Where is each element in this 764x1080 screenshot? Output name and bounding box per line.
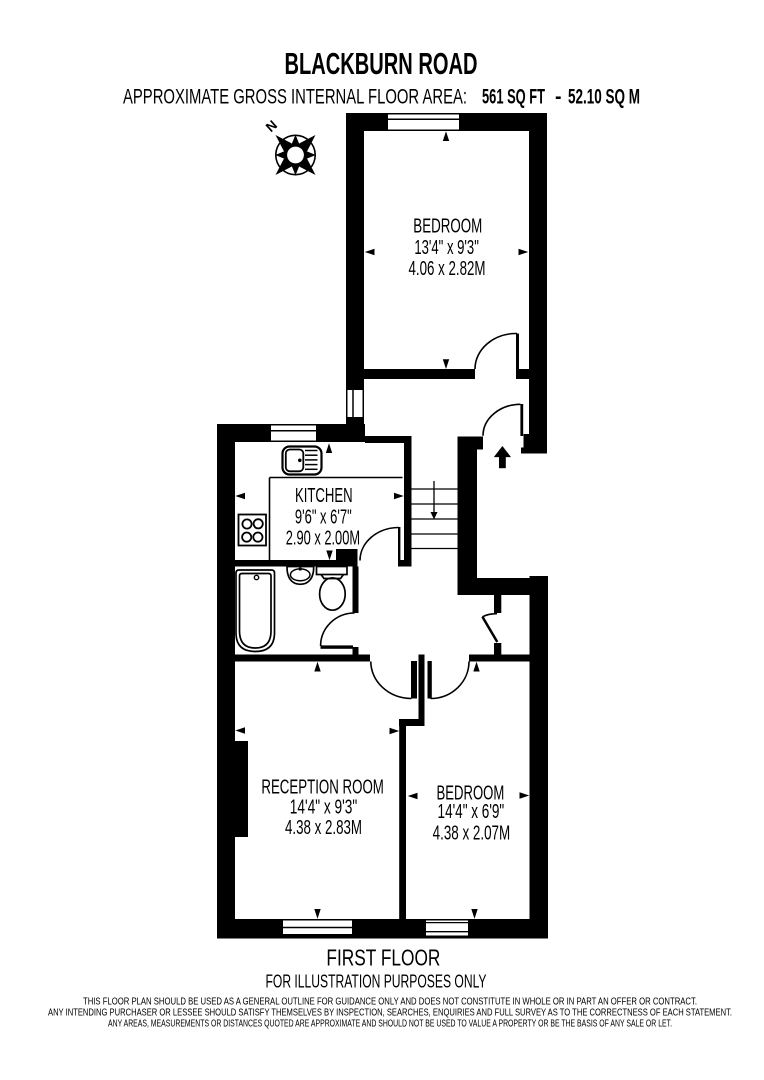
- svg-text:4.38 x 2.83M: 4.38 x 2.83M: [285, 817, 362, 839]
- svg-text:13'4" x 9'3": 13'4" x 9'3": [414, 237, 479, 259]
- svg-text:-: -: [555, 85, 562, 109]
- svg-text:9'6" x 6'7": 9'6" x 6'7": [295, 506, 352, 528]
- svg-text:THIS FLOOR PLAN SHOULD BE USED: THIS FLOOR PLAN SHOULD BE USED AS A GENE…: [83, 997, 697, 1008]
- svg-text:KITCHEN: KITCHEN: [295, 485, 353, 507]
- svg-text:52.10 SQ M: 52.10 SQ M: [568, 85, 640, 109]
- svg-text:FOR ILLUSTRATION PURPOSES ONLY: FOR ILLUSTRATION PURPOSES ONLY: [266, 971, 487, 992]
- svg-text:4.38 x 2.07M: 4.38 x 2.07M: [433, 823, 511, 845]
- svg-text:4.06 x 2.82M: 4.06 x 2.82M: [409, 258, 486, 280]
- svg-text:ANY AREAS, MEASUREMENTS OR DIS: ANY AREAS, MEASUREMENTS OR DISTANCES QUO…: [108, 1019, 672, 1030]
- svg-text:2.90 x 2.00M: 2.90 x 2.00M: [286, 528, 360, 550]
- svg-text:14'4" x 6'9": 14'4" x 6'9": [438, 801, 505, 823]
- svg-text:BLACKBURN ROAD: BLACKBURN ROAD: [285, 46, 478, 81]
- svg-text:APPROXIMATE GROSS INTERNAL FLO: APPROXIMATE GROSS INTERNAL FLOOR AREA:: [123, 85, 467, 109]
- svg-text:14'4" x 9'3": 14'4" x 9'3": [290, 797, 358, 819]
- svg-text:FIRST FLOOR: FIRST FLOOR: [326, 945, 440, 971]
- svg-text:ANY INTENDING PURCHASER OR LES: ANY INTENDING PURCHASER OR LESSEE SHOULD…: [48, 1008, 732, 1019]
- svg-text:BEDROOM: BEDROOM: [413, 216, 482, 238]
- svg-text:561 SQ FT: 561 SQ FT: [482, 85, 545, 109]
- svg-text:RECEPTION ROOM: RECEPTION ROOM: [261, 776, 384, 798]
